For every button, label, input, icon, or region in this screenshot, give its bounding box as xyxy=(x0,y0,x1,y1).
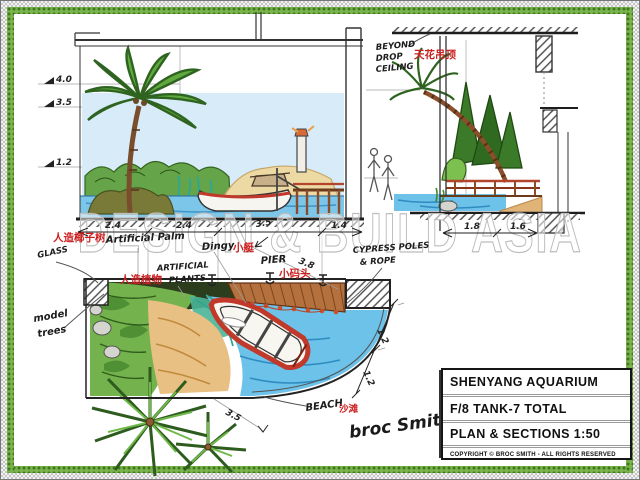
title-block: SHENYANG AQUARIUM F/8 TANK-7 TOTAL PLAN … xyxy=(441,368,632,460)
title-block-project: SHENYANG AQUARIUM xyxy=(443,370,630,394)
aquarium-design-drawing: 4.0 3.5 1.2 xyxy=(0,0,640,480)
title-block-sheet: F/8 TANK-7 TOTAL xyxy=(443,394,630,420)
beach-label-cn: 沙滩 xyxy=(339,403,359,415)
cypress-label-2: & ROPE xyxy=(360,255,397,268)
level-4.0: 4.0 xyxy=(55,75,72,85)
dinghy-label-cn: 小艇 xyxy=(232,241,254,254)
dim-beach-3.5: 3.5 xyxy=(224,408,243,424)
glass-label: GLASS xyxy=(37,245,69,261)
title-block-content: PLAN & SECTIONS 1:50 xyxy=(443,420,630,445)
dim-1.8: 1.8 xyxy=(464,222,480,232)
drop-ceiling-label-1: BEYOND xyxy=(375,40,415,53)
pier-label-cn: 小码头 xyxy=(278,267,311,280)
plan-drawing xyxy=(84,273,390,476)
model-trees-label-2: trees xyxy=(37,324,68,340)
artificial-plants-label-cn: 人造植物 xyxy=(120,273,162,286)
dim-1.6: 1.6 xyxy=(510,222,526,232)
title-block-copyright: COPYRIGHT © BROC SMITH - ALL RIGHTS RESE… xyxy=(443,445,630,462)
dim-1.2-a: 1.2 xyxy=(374,327,390,346)
dim-1.4: 1.4 xyxy=(331,221,347,231)
pier-label-en: PIER xyxy=(260,254,286,267)
drop-ceiling-label-cn: 天花吊顶 xyxy=(414,48,456,61)
model-trees-label-1: model xyxy=(33,308,70,325)
level-1.2: 1.2 xyxy=(56,158,72,168)
dim-2.4-a: 2.4 xyxy=(105,221,121,231)
dinghy-label-en: Dingy xyxy=(202,240,236,253)
designer-signature: broc Smith xyxy=(348,409,454,443)
dim-2.4-b: 2.4 xyxy=(176,221,192,231)
dim-1.2-b: 1.2 xyxy=(360,369,376,388)
artificial-palm-label-cn: 人造椰子树 xyxy=(53,231,106,244)
level-3.5: 3.5 xyxy=(56,98,72,108)
